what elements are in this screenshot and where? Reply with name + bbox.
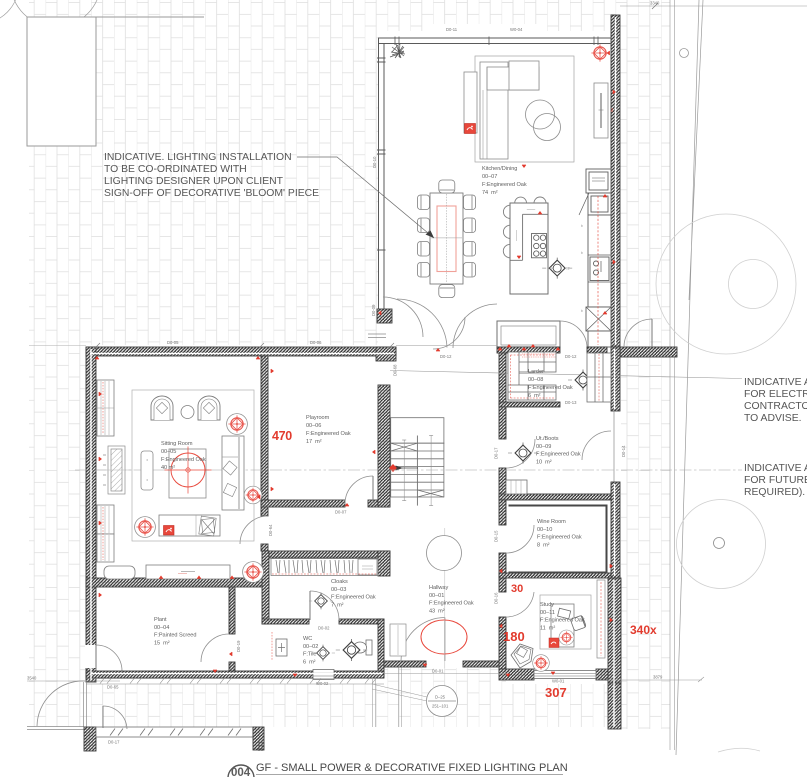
- svg-text:D0-17: D0-17: [494, 447, 499, 459]
- svg-text:D0-12: D0-12: [440, 354, 452, 359]
- svg-text:00–08: 00–08: [528, 377, 543, 383]
- svg-text:7 m²: 7 m²: [331, 603, 344, 609]
- svg-text:D0-11: D0-11: [446, 27, 458, 32]
- svg-text:307: 307: [545, 685, 567, 700]
- svg-text:GF - SMALL POWER & DECORATIVE: GF - SMALL POWER & DECORATIVE FIXED LIGH…: [256, 762, 568, 774]
- svg-text:470: 470: [272, 429, 292, 443]
- svg-text:02: 02: [566, 267, 570, 271]
- svg-text:6 m²: 6 m²: [528, 393, 541, 399]
- svg-text:D0-06: D0-06: [310, 340, 322, 345]
- svg-text:00–11: 00–11: [540, 610, 555, 616]
- svg-text:17 m²: 17 m²: [306, 439, 322, 445]
- svg-text:F:Engineered Oak: F:Engineered Oak: [536, 452, 581, 458]
- svg-text:Wine Room: Wine Room: [537, 519, 566, 525]
- svg-text:W0-02: W0-02: [316, 681, 329, 686]
- svg-text:00–04: 00–04: [154, 625, 169, 631]
- svg-text:8 m²: 8 m²: [537, 543, 550, 549]
- svg-text:TO ADVISE.: TO ADVISE.: [744, 413, 802, 424]
- svg-text:CONTRACTOR PANEL: CONTRACTOR PANEL: [744, 401, 807, 412]
- svg-text:00–07: 00–07: [482, 174, 497, 180]
- svg-text:74 m²: 74 m²: [482, 190, 498, 196]
- svg-text:00–06: 00–06: [306, 423, 321, 429]
- svg-text:F:Engineered Oak: F:Engineered Oak: [537, 535, 582, 541]
- svg-text:D–25: D–25: [435, 695, 446, 700]
- svg-text:3340: 3340: [650, 1, 660, 6]
- svg-text:11 m²: 11 m²: [540, 626, 555, 632]
- svg-text:Sitting Room: Sitting Room: [161, 441, 193, 447]
- svg-text:D0-13: D0-13: [565, 400, 577, 405]
- svg-text:b: b: [581, 251, 583, 255]
- svg-text:INDICATIVE ALLOWANCE: INDICATIVE ALLOWANCE: [744, 463, 807, 474]
- svg-text:D0-02: D0-02: [318, 626, 330, 631]
- svg-text:D0-14: D0-14: [621, 445, 626, 457]
- svg-text:3540: 3540: [27, 676, 37, 681]
- svg-text:W0-04: W0-04: [510, 27, 523, 32]
- svg-text:F:Painted Screed: F:Painted Screed: [154, 633, 196, 639]
- svg-text:F:Engineered Oak: F:Engineered Oak: [528, 385, 573, 391]
- svg-text:00–02: 00–02: [303, 644, 318, 650]
- svg-text:INDICATIVE ALLOWANCE: INDICATIVE ALLOWANCE: [744, 377, 807, 388]
- svg-text:00–09: 00–09: [536, 444, 551, 450]
- svg-text:D0-65: D0-65: [107, 685, 119, 690]
- svg-text:F:Engineered Oak: F:Engineered Oak: [161, 457, 206, 463]
- svg-text:10 m²: 10 m²: [536, 460, 552, 466]
- svg-text:Kitchen/Dining: Kitchen/Dining: [482, 166, 517, 172]
- svg-text:D0-09: D0-09: [371, 304, 376, 316]
- svg-text:D0-05: D0-05: [167, 340, 179, 345]
- svg-text:F:Engineered Oak: F:Engineered Oak: [540, 618, 585, 624]
- svg-text:FOR FUTURE USE (IF: FOR FUTURE USE (IF: [744, 475, 807, 486]
- svg-text:b: b: [581, 309, 583, 313]
- svg-text:30: 30: [511, 583, 523, 595]
- svg-text:Larder: Larder: [528, 369, 544, 375]
- svg-text:W0-01: W0-01: [552, 679, 565, 684]
- svg-text:F:Tile: F:Tile: [303, 652, 316, 658]
- svg-text:00–03: 00–03: [331, 587, 346, 593]
- svg-text:Playroom: Playroom: [306, 415, 330, 421]
- svg-text:43 m²: 43 m²: [429, 609, 445, 615]
- svg-text:251–101: 251–101: [432, 704, 449, 709]
- svg-text:TO BE CO-ORDINATED WITH: TO BE CO-ORDINATED WITH: [104, 164, 247, 175]
- svg-text:F:Engineered Oak: F:Engineered Oak: [429, 601, 474, 607]
- svg-text:340x: 340x: [630, 623, 657, 637]
- svg-text:3879: 3879: [653, 675, 663, 680]
- svg-text:Study: Study: [540, 602, 554, 608]
- svg-text:04: 04: [550, 267, 554, 271]
- svg-text:Plant: Plant: [154, 617, 167, 623]
- svg-text:D0-01: D0-01: [432, 669, 444, 674]
- svg-text:F:Engineered Oak: F:Engineered Oak: [306, 431, 351, 437]
- svg-text:Ut./Boots: Ut./Boots: [536, 436, 559, 442]
- svg-text:b: b: [581, 224, 583, 228]
- svg-text:FOR ELECTRICAL CAR: FOR ELECTRICAL CAR: [744, 389, 807, 400]
- svg-text:D0-16: D0-16: [494, 592, 499, 604]
- svg-text:40 m²: 40 m²: [161, 465, 175, 471]
- svg-text:004: 004: [231, 767, 251, 777]
- svg-text:Hallway: Hallway: [429, 585, 448, 591]
- svg-text:Cloaks: Cloaks: [331, 579, 348, 585]
- svg-text:F:Engineered Oak: F:Engineered Oak: [482, 182, 527, 188]
- svg-text:15 m²: 15 m²: [154, 641, 170, 647]
- svg-text:D0-19: D0-19: [236, 640, 241, 652]
- svg-text:6 m²: 6 m²: [303, 660, 316, 666]
- svg-text:D0-17: D0-17: [108, 740, 120, 745]
- svg-text:LIGHTING DESIGNER UPON CLIENT: LIGHTING DESIGNER UPON CLIENT: [104, 176, 284, 187]
- svg-text:D0-12: D0-12: [565, 354, 577, 359]
- svg-text:D0-64: D0-64: [268, 524, 273, 536]
- svg-text:SIGN-OFF OF DECORATIVE 'BLOOM': SIGN-OFF OF DECORATIVE 'BLOOM' PIECE: [104, 188, 319, 199]
- svg-text:D0-68: D0-68: [393, 364, 398, 376]
- svg-text:INDICATIVE. LIGHTING INSTALLAT: INDICATIVE. LIGHTING INSTALLATION: [104, 152, 292, 163]
- svg-text:REQUIRED).: REQUIRED).: [744, 487, 805, 498]
- svg-text:D0-07: D0-07: [335, 510, 347, 515]
- svg-text:00–05: 00–05: [161, 449, 176, 455]
- svg-text:WC: WC: [303, 636, 312, 642]
- svg-text:00–10: 00–10: [537, 527, 552, 533]
- svg-text:180: 180: [503, 629, 525, 644]
- svg-text:F:Engineered Oak: F:Engineered Oak: [331, 595, 376, 601]
- svg-text:D0-15: D0-15: [494, 530, 499, 542]
- svg-text:D0-10: D0-10: [372, 156, 377, 168]
- svg-text:00–01: 00–01: [429, 593, 444, 599]
